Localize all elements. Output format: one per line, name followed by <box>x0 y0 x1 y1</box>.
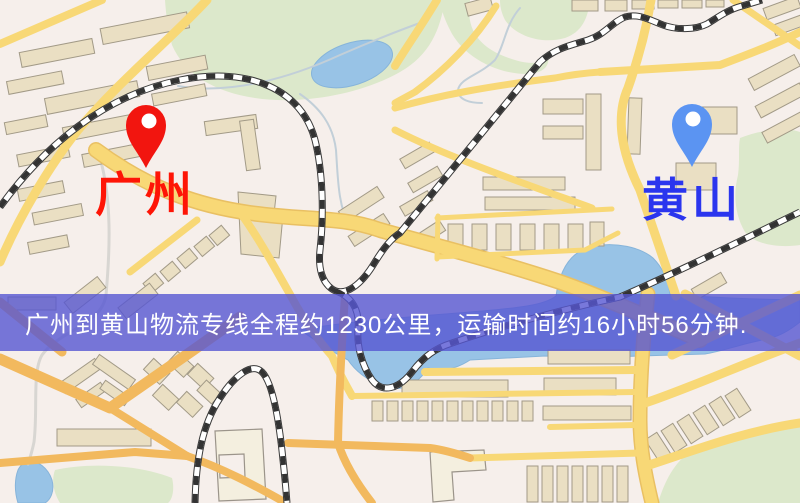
map-background <box>0 0 800 503</box>
map-screenshot: 广州到黄山物流专线全程约1230公里，运输时间约16小时56分钟. 广州 黄山 <box>0 0 800 503</box>
origin-city-label: 广州 <box>95 172 195 219</box>
route-info-text: 广州到黄山物流专线全程约1230公里，运输时间约16小时56分钟. <box>25 305 747 340</box>
destination-pin-hole <box>686 112 701 127</box>
destination-city-label: 黄山 <box>642 177 742 223</box>
origin-pin-hole <box>142 114 157 129</box>
destination-pin-icon[interactable] <box>667 97 717 171</box>
map-canvas[interactable] <box>0 0 800 503</box>
origin-pin-icon[interactable] <box>121 98 171 172</box>
route-info-banner: 广州到黄山物流专线全程约1230公里，运输时间约16小时56分钟. <box>0 294 800 351</box>
